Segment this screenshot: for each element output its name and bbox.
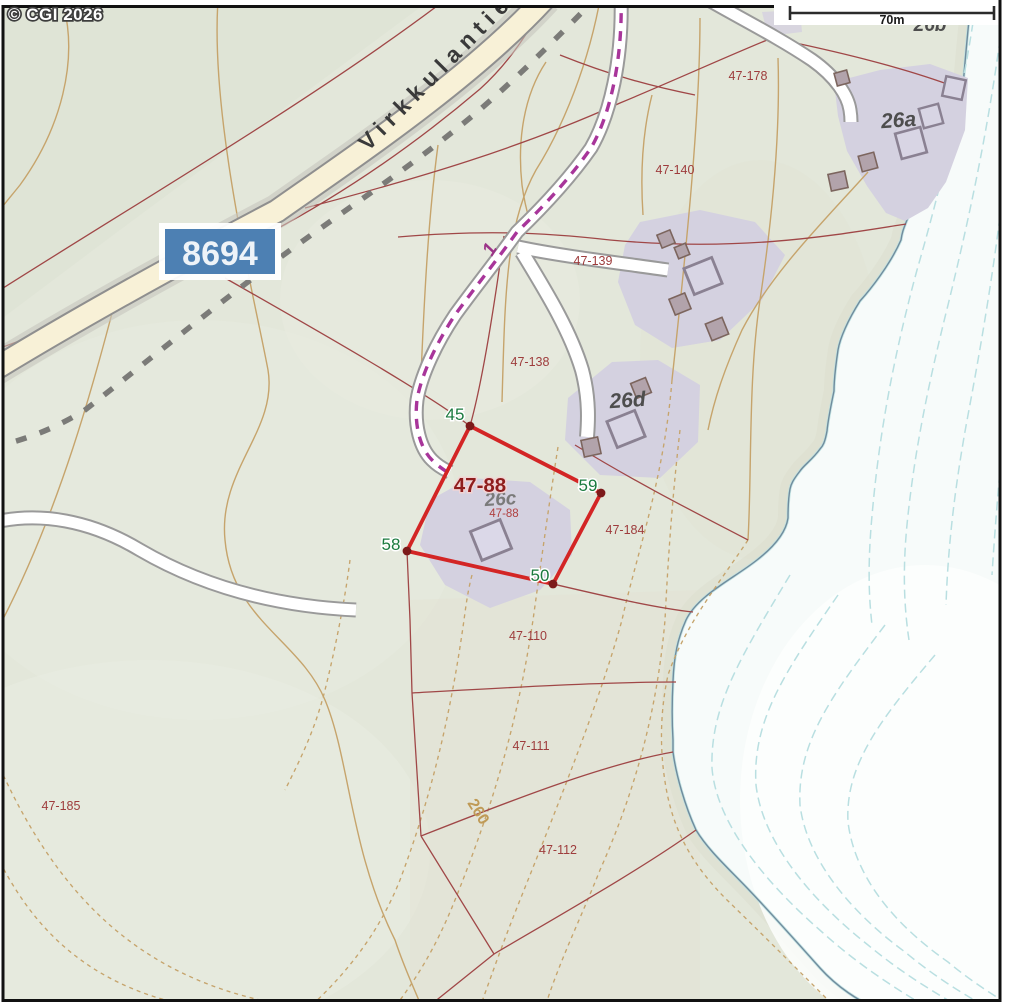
- svg-text:70m: 70m: [879, 13, 904, 27]
- svg-text:© CGI 2026: © CGI 2026: [8, 5, 103, 24]
- svg-text:47-139: 47-139: [574, 254, 613, 268]
- svg-text:47-110: 47-110: [509, 629, 547, 643]
- svg-text:47-111: 47-111: [512, 739, 549, 753]
- svg-text:50: 50: [531, 566, 550, 585]
- svg-text:45: 45: [446, 405, 465, 424]
- svg-text:47-140: 47-140: [656, 163, 695, 177]
- svg-text:47-88: 47-88: [489, 508, 518, 520]
- svg-text:59: 59: [579, 476, 598, 495]
- svg-text:47-112: 47-112: [539, 843, 577, 857]
- svg-text:26d: 26d: [608, 388, 648, 414]
- svg-text:26a: 26a: [879, 108, 917, 133]
- svg-text:47-88: 47-88: [454, 474, 506, 497]
- svg-text:47-178: 47-178: [729, 69, 768, 83]
- svg-text:47-185: 47-185: [42, 799, 81, 813]
- svg-text:8694: 8694: [182, 235, 258, 273]
- svg-text:47-184: 47-184: [606, 523, 645, 537]
- svg-text:58: 58: [382, 535, 401, 554]
- svg-text:47-138: 47-138: [511, 355, 550, 369]
